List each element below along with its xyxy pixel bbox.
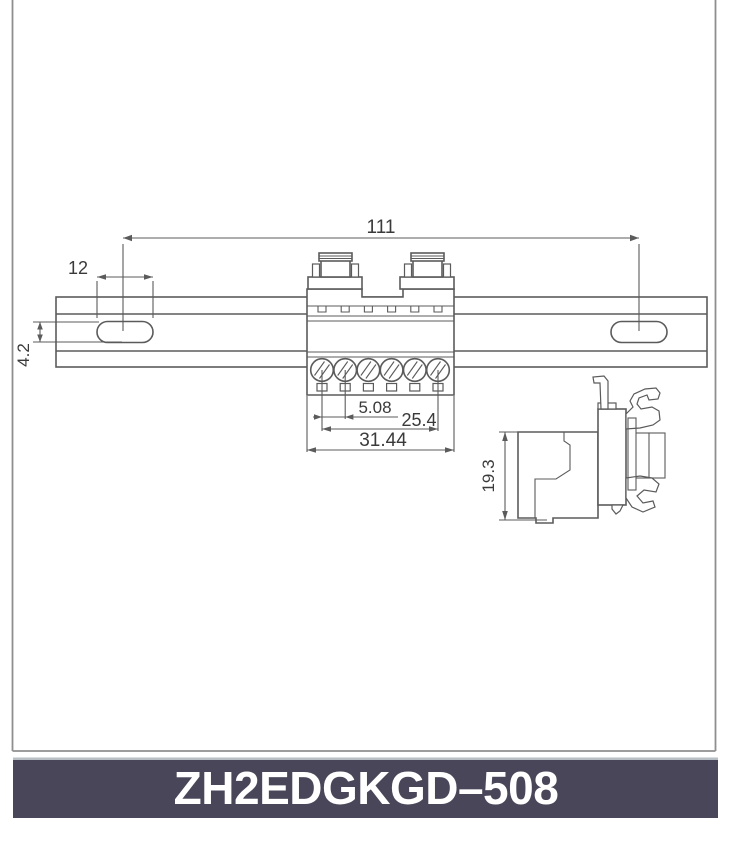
dimension-label-12: 12 [68,258,88,278]
din-clip-bottom-claw [626,476,659,512]
arrowhead [314,414,322,420]
dimension-slot-width: 12 [68,258,153,318]
side-view: 19.3 [479,376,665,523]
drawing-page: 111 12 4.2 [0,0,729,845]
plug-ear [313,264,320,277]
plug-ear [405,264,412,277]
arrowhead [345,414,353,420]
plate-foot [612,505,623,514]
dimension-label-31-44: 31.44 [359,430,407,451]
model-title-bar: ZH2EDGKGD–508 [13,758,718,819]
din-clip-top-claw [626,388,660,429]
plug-ear [444,264,451,277]
arrowhead [322,426,331,432]
dimension-label-25-4: 25.4 [401,410,436,430]
arrowhead [144,274,153,280]
din-clip [626,388,665,512]
dimension-label-111: 111 [367,217,396,238]
plate-body [598,409,626,505]
arrowhead [630,235,639,241]
dimension-label-5-08: 5.08 [358,398,391,417]
arrowhead [37,335,43,343]
arrowhead [97,274,106,280]
terminal-block-front-view [307,253,454,395]
wire-clamp-lever-right [400,253,454,289]
plug-lever [321,260,350,277]
plate-top-hook [593,376,608,409]
technical-drawing-canvas: 111 12 4.2 [0,0,729,845]
plug-cap [411,253,444,261]
din-clip-section-block [649,433,665,478]
arrowhead [502,432,508,441]
plug-lever [413,260,442,277]
arrowhead [445,447,454,453]
mounting-slot-left [97,322,153,343]
arrowhead [37,322,43,330]
dimension-label-19-3: 19.3 [479,459,498,492]
dimension-label-4-2: 4.2 [14,343,33,367]
model-number: ZH2EDGKGD–508 [174,762,559,814]
mounting-plate [593,376,626,514]
plug-base [400,277,454,289]
arrowhead [307,447,316,453]
arrowhead [502,511,508,520]
plug-ear [352,264,359,277]
plug-cap [319,253,352,261]
plug-base [308,277,362,289]
wire-clamp-lever-left [308,253,362,289]
arrowhead [123,235,132,241]
